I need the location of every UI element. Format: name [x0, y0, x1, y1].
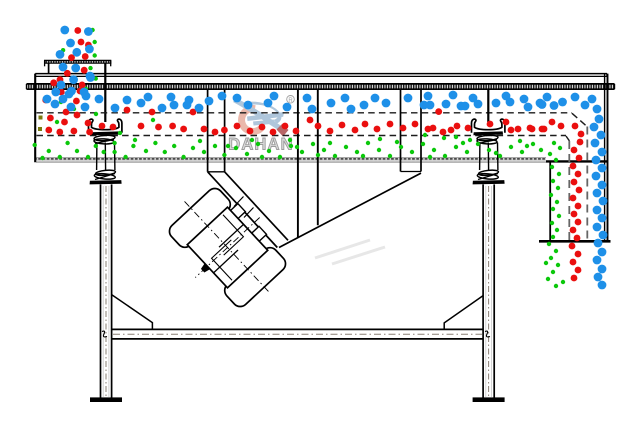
svg-text:R: R — [288, 98, 293, 104]
svg-text:DAHAN: DAHAN — [228, 136, 294, 154]
